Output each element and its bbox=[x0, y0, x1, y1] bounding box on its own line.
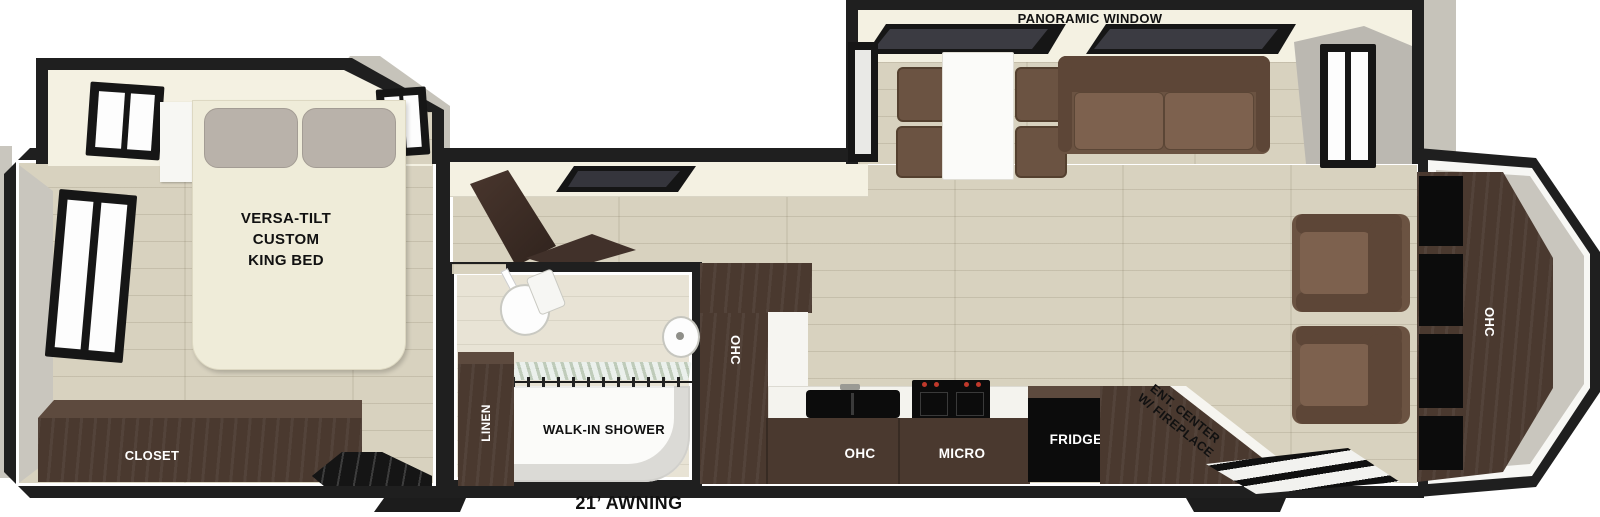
sink-drain bbox=[676, 332, 684, 340]
wardrobe-nightstand bbox=[160, 102, 192, 182]
closet-label: CLOSET bbox=[92, 446, 212, 464]
sofa-armrest bbox=[1256, 60, 1270, 152]
window-glass bbox=[874, 29, 1054, 49]
recliner-chair bbox=[1292, 214, 1410, 312]
panoramic-window-right bbox=[1086, 24, 1296, 54]
dinette-table bbox=[942, 52, 1014, 180]
recliner-seat bbox=[1300, 232, 1370, 294]
walk-in-shower-label: WALK-IN SHOWER bbox=[516, 420, 692, 438]
stove-grate bbox=[920, 392, 948, 416]
bedroom-front-window bbox=[45, 189, 137, 363]
bathroom-door-opening bbox=[452, 264, 506, 274]
recliner-back bbox=[1368, 334, 1402, 416]
window-pane bbox=[1328, 52, 1345, 160]
window-pane bbox=[855, 50, 871, 154]
skylight-glass bbox=[568, 171, 684, 187]
bed-label: VERSA-TILT CUSTOM KING BED bbox=[180, 206, 392, 272]
rear-ohc-label: OHC bbox=[1480, 292, 1500, 352]
pantry-ohc-label: OHC bbox=[726, 320, 746, 380]
bed-label-line3: KING BED bbox=[248, 250, 324, 271]
closet-top bbox=[38, 400, 362, 418]
bed-label-line2: CUSTOM bbox=[253, 229, 320, 250]
entry-step bbox=[374, 498, 466, 512]
bed-label-line1: VERSA-TILT bbox=[241, 208, 331, 229]
panoramic-window-label: PANORAMIC WINDOW bbox=[1000, 10, 1180, 26]
linen-label: LINEN bbox=[476, 395, 496, 451]
sofa-armrest bbox=[1058, 62, 1072, 152]
stove-knob bbox=[976, 382, 981, 387]
dinette-chair bbox=[897, 67, 947, 122]
linen-cabinet-top bbox=[458, 352, 514, 364]
pano-slide-window-rightend bbox=[1320, 44, 1376, 168]
entry-step bbox=[1186, 498, 1286, 512]
faucet bbox=[840, 384, 860, 390]
floorplan-canvas: VERSA-TILT CUSTOM KING BED CLOSET WALK-I… bbox=[0, 0, 1600, 517]
kitchen-pantry-upper bbox=[700, 263, 812, 313]
pano-slide-window-leftend bbox=[848, 42, 878, 162]
sofa-cushion bbox=[1164, 92, 1254, 150]
bedroom-slide-window-left bbox=[86, 82, 165, 161]
pillow bbox=[302, 108, 396, 168]
kitchen-backsplash bbox=[768, 312, 808, 392]
sofa-cushion bbox=[1074, 92, 1164, 150]
stove-knob bbox=[922, 382, 927, 387]
window-glass bbox=[1094, 29, 1284, 49]
stove-cooktop bbox=[912, 380, 990, 420]
recliner-back bbox=[1368, 222, 1402, 304]
recliner-chair bbox=[1292, 326, 1410, 424]
kitchen-sink bbox=[806, 390, 900, 418]
window-pane bbox=[1351, 52, 1368, 160]
awning-label: 21’ AWNING bbox=[544, 491, 714, 515]
rear-ohc-cubby bbox=[1419, 176, 1463, 246]
window-pane bbox=[95, 91, 125, 149]
skylight bbox=[556, 166, 696, 192]
pillow bbox=[204, 108, 298, 168]
dinette-chair bbox=[896, 126, 947, 178]
sofa-back bbox=[1058, 56, 1270, 92]
stove-grate bbox=[956, 392, 984, 416]
micro-label: MICRO bbox=[924, 444, 1000, 462]
stove-knob bbox=[934, 382, 939, 387]
panoramic-window-left bbox=[866, 24, 1066, 54]
sofa bbox=[1058, 56, 1270, 154]
sink-divider bbox=[851, 393, 854, 415]
recliner-seat bbox=[1300, 344, 1370, 406]
window-pane bbox=[89, 203, 128, 353]
window-pane bbox=[55, 200, 94, 350]
rear-ohc-cubby bbox=[1419, 254, 1463, 326]
rear-ohc-cubby bbox=[1419, 334, 1463, 408]
window-pane bbox=[127, 93, 155, 151]
rear-ohc-cubby bbox=[1419, 416, 1463, 470]
stove-knob bbox=[964, 382, 969, 387]
shower-rod-rings bbox=[512, 377, 692, 387]
kitchen-ohc-label: OHC bbox=[824, 444, 896, 462]
